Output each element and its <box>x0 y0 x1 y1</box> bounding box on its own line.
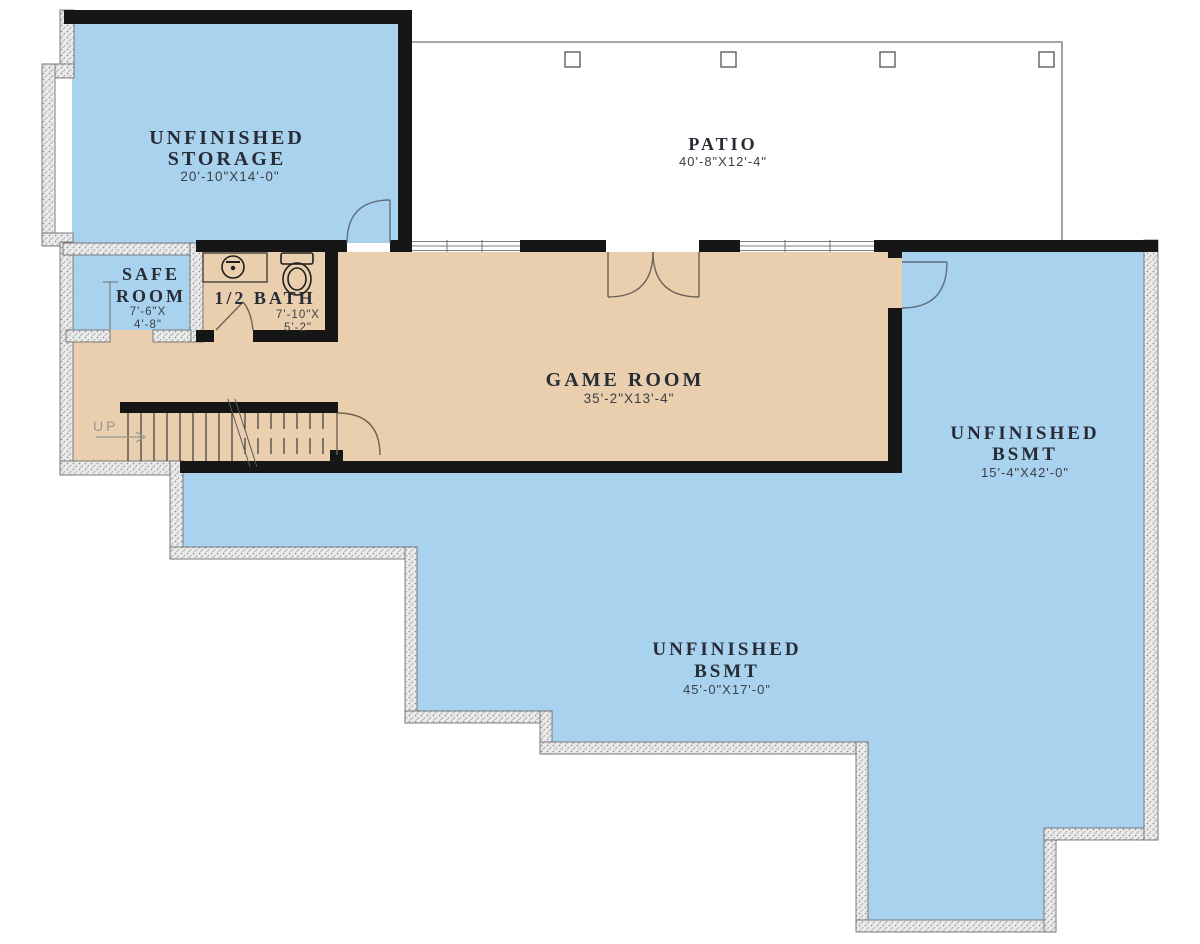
patio-post <box>721 52 736 67</box>
wall-safe-bottom-right <box>153 330 191 342</box>
storage-dims: 20'-10"X14'-0" <box>180 169 279 184</box>
patio-post <box>1039 52 1054 67</box>
wall-gameroom-top-2 <box>699 240 740 252</box>
half-bath-dims-2: 5'-2" <box>284 322 312 334</box>
patio-label: PATIO <box>688 134 757 154</box>
window-band-right <box>740 240 874 252</box>
wall-storage-door-corner <box>390 240 412 252</box>
wall-bottom <box>856 920 1056 932</box>
bsmt-right-label-2: BSMT <box>992 444 1058 465</box>
bsmt-lower-dims: 45'-0"X17'-0" <box>683 682 771 697</box>
wall-bath-right <box>325 240 338 342</box>
safe-room-dims-2: 4'-8" <box>134 319 162 331</box>
wall-step-v1 <box>170 461 183 559</box>
wall-gameroom-top-1 <box>520 240 606 252</box>
bsmt-lower-label-2: BSMT <box>694 661 760 682</box>
sink-drain <box>231 266 235 270</box>
safe-room-label-2: ROOM <box>116 286 186 306</box>
wall-left-long <box>42 64 55 242</box>
wall-hall-bottom <box>60 461 183 475</box>
wall-gameroom-right-top <box>888 240 902 258</box>
wall-right <box>1144 240 1158 840</box>
half-bath-dims-1: 7'-10"X <box>276 309 320 321</box>
wall-gameroom-bottom <box>180 461 902 473</box>
wall-bsmt-top <box>874 240 1158 252</box>
wall-step-h2 <box>405 711 552 723</box>
patio-posts <box>565 52 1054 67</box>
windows <box>412 240 874 252</box>
wall-safe-bottom-left <box>66 330 110 342</box>
wall-step-v2 <box>405 547 417 723</box>
stairs-up-label: UP <box>93 418 118 434</box>
wall-step-v5 <box>1044 828 1056 932</box>
patio-post <box>565 52 580 67</box>
wall-safe-right <box>190 243 203 342</box>
wall-step-h4 <box>1044 828 1158 840</box>
wall-step-h1 <box>170 547 417 559</box>
wall-step-h3 <box>540 742 868 754</box>
safe-room-dims-1: 7'-6"X <box>130 306 167 318</box>
storage-label-2: STORAGE <box>168 148 286 170</box>
wall-storage-top <box>64 10 412 24</box>
patio-post <box>880 52 895 67</box>
floor-plan-page: UP UNFINISHED STORAGE 20'-10"X14'-0" PAT… <box>0 0 1200 944</box>
window-band-left <box>412 240 520 252</box>
safe-room-label-1: SAFE <box>122 264 180 284</box>
game-room-dims: 35'-2"X13'-4" <box>584 391 675 406</box>
half-bath-label: 1/2 BATH <box>214 288 315 308</box>
wall-step-v4 <box>856 742 868 927</box>
wall-storage-safe <box>63 243 197 255</box>
wall-bath-top <box>196 240 347 252</box>
hall-floor <box>64 330 206 472</box>
storage-label-1: UNFINISHED <box>149 127 305 149</box>
bsmt-lower-label-1: UNFINISHED <box>652 639 801 660</box>
game-room-floor <box>196 252 902 472</box>
patio-dims: 40'-8"X12'-4" <box>679 154 767 169</box>
bsmt-right-label-1: UNFINISHED <box>950 423 1099 444</box>
wall-storage-right <box>398 10 412 252</box>
wall-left-mid <box>60 242 73 475</box>
game-room-label: GAME ROOM <box>546 369 705 391</box>
wall-gameroom-right-bottom <box>888 308 902 473</box>
bsmt-right-dims: 15'-4"X42'-0" <box>981 465 1069 480</box>
wall-bath-corner <box>196 330 214 342</box>
floor-plan-svg: UP UNFINISHED STORAGE 20'-10"X14'-0" PAT… <box>0 0 1200 944</box>
